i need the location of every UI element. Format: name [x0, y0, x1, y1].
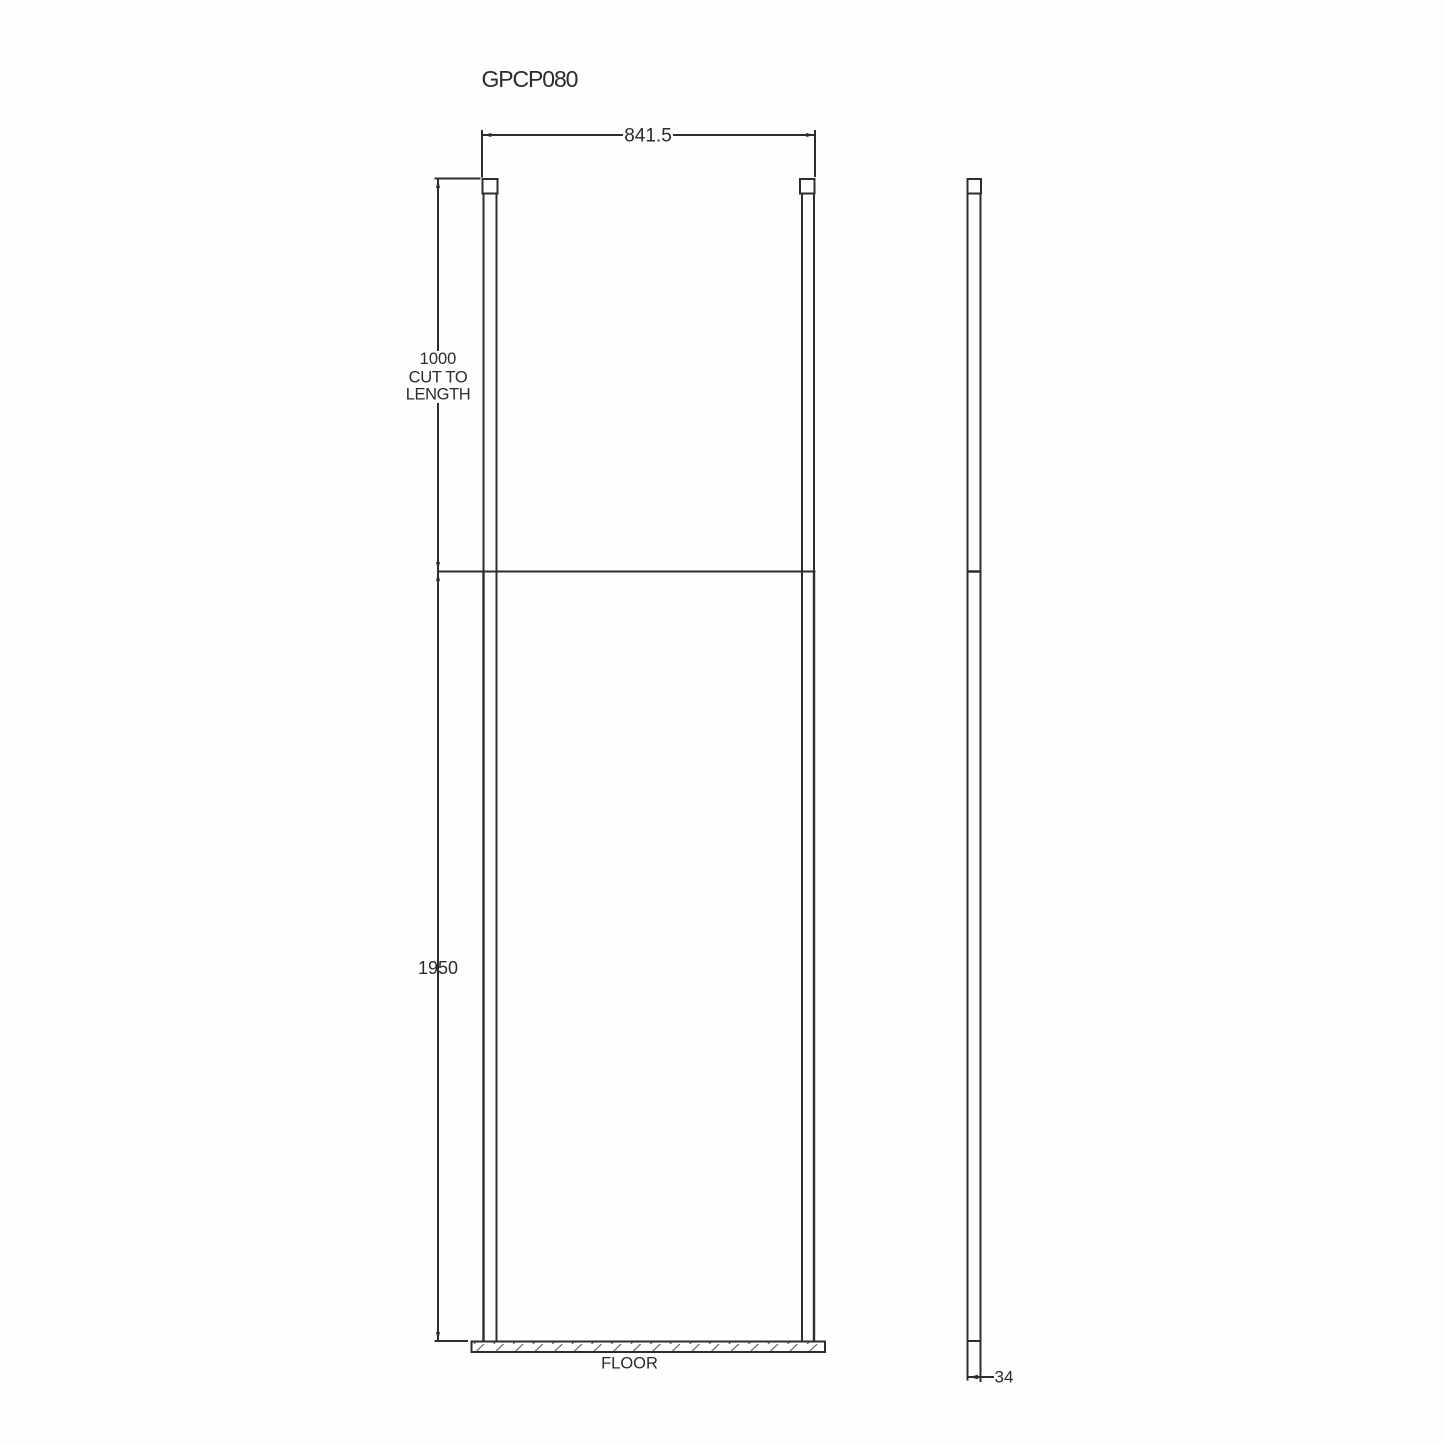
svg-text:FLOOR: FLOOR	[601, 1355, 658, 1373]
svg-text:1950: 1950	[418, 958, 458, 978]
svg-text:1000: 1000	[420, 350, 457, 368]
svg-text:34: 34	[995, 1368, 1014, 1387]
svg-text:841.5: 841.5	[624, 126, 672, 147]
svg-text:GPCP080: GPCP080	[482, 66, 578, 92]
svg-text:CUT TO: CUT TO	[409, 369, 468, 387]
svg-text:LENGTH: LENGTH	[406, 386, 471, 404]
